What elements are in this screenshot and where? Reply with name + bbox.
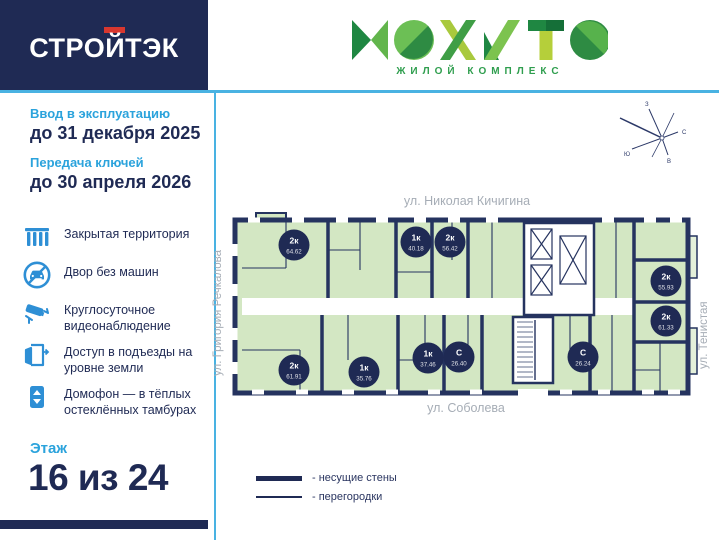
intercom-icon xyxy=(22,382,52,412)
unit-badge: 2к56.42 xyxy=(435,227,466,258)
cctv-icon xyxy=(22,298,52,328)
street-left: ул. Григория Речкалова xyxy=(212,238,224,388)
street-bottom: ул. Соболева xyxy=(396,401,536,415)
compass-north: С xyxy=(682,130,687,136)
compass-east: В xyxy=(667,159,671,165)
compass-south: Ю xyxy=(624,152,630,158)
unit-area: 26.40 xyxy=(451,361,467,368)
feature-closed-territory: Закрытая территория xyxy=(22,222,212,252)
unit-type: 2к xyxy=(662,272,672,282)
complex-logo xyxy=(352,12,608,64)
floor-plan: 2к64.621к40.182к56.422к55.932к61.332к61.… xyxy=(230,210,700,402)
plan-legend: - несущие стены - перегородки xyxy=(256,472,397,510)
unit-badge: С26.24 xyxy=(568,342,599,373)
unit-badge: 1к35.76 xyxy=(349,357,380,388)
keys-date: до 30 апреля 2026 xyxy=(30,172,191,193)
unit-type: 2к xyxy=(290,236,300,246)
elevator-core xyxy=(524,223,594,315)
feature-label: Домофон — в тёплых остеклённых тамбурах xyxy=(64,382,212,418)
floor-value: 16 из 24 xyxy=(28,457,168,499)
unit-badge: 2к61.33 xyxy=(651,306,682,337)
unit-badge: 1к40.18 xyxy=(401,227,432,258)
unit-type: 1к xyxy=(412,233,422,243)
unit-type: 2к xyxy=(290,361,300,371)
unit-badge: 2к55.93 xyxy=(651,266,682,297)
legend-label: - несущие стены xyxy=(312,472,397,484)
unit-area: 37.46 xyxy=(420,362,436,369)
feature-label: Круглосуточное видеонаблюдение xyxy=(64,298,212,334)
unit-badge: 2к64.62 xyxy=(279,230,310,261)
feature-intercom: Домофон — в тёплых остеклённых тамбурах xyxy=(22,382,212,418)
developer-logo-box: СТРОЙТЭК xyxy=(0,0,208,90)
unit-type: 2к xyxy=(446,233,456,243)
unit-area: 61.91 xyxy=(286,374,302,381)
feature-video: Круглосуточное видеонаблюдение xyxy=(22,298,212,334)
feature-label: Двор без машин xyxy=(64,260,159,280)
unit-badge: 1к37.46 xyxy=(413,343,444,374)
unit-area: 55.93 xyxy=(658,285,674,292)
unit-area: 56.42 xyxy=(442,246,458,253)
fence-icon xyxy=(22,222,52,252)
unit-area: 64.62 xyxy=(286,249,302,256)
commissioning-label: Ввод в эксплуатацию xyxy=(30,106,170,121)
corridor xyxy=(594,298,634,315)
unit-type: 1к xyxy=(424,349,434,359)
unit-type: 2к xyxy=(662,312,672,322)
complex-subtitle: ЖИЛОЙ КОМПЛЕКС xyxy=(352,66,608,77)
unit-type: С xyxy=(456,348,462,358)
unit-type: 1к xyxy=(360,363,370,373)
corridor xyxy=(242,298,524,315)
no-car-icon xyxy=(22,260,52,290)
compass-rose: З С В Ю xyxy=(616,96,704,172)
thick-line-swatch xyxy=(256,476,302,481)
unit-area: 40.18 xyxy=(408,246,424,253)
unit-area: 35.76 xyxy=(356,376,372,383)
legend-bearing-walls: - несущие стены xyxy=(256,472,397,484)
thin-line-swatch xyxy=(256,496,302,498)
commissioning-date: до 31 декабря 2025 xyxy=(30,123,200,144)
sidebar-footer-bar xyxy=(0,520,208,529)
unit-area: 26.24 xyxy=(575,361,591,368)
unit-area: 61.33 xyxy=(658,325,674,332)
unit-badge: С26.40 xyxy=(444,342,475,373)
keys-label: Передача ключей xyxy=(30,155,144,170)
legend-label: - перегородки xyxy=(312,491,382,503)
door-icon xyxy=(22,340,52,370)
unit-type: С xyxy=(580,348,586,358)
feature-label: Закрытая территория xyxy=(64,222,189,242)
developer-logo: СТРОЙТЭК xyxy=(0,33,208,64)
header-divider xyxy=(0,90,719,93)
floor-label: Этаж xyxy=(30,440,67,457)
street-top: ул. Николая Кичигина xyxy=(382,194,552,208)
feature-label: Доступ в подъезды на уровне земли xyxy=(64,340,212,376)
unit-badge: 2к61.91 xyxy=(279,355,310,386)
feature-no-cars: Двор без машин xyxy=(22,260,212,290)
legend-partitions: - перегородки xyxy=(256,491,397,503)
compass-west: З xyxy=(645,102,649,108)
feature-ground-access: Доступ в подъезды на уровне земли xyxy=(22,340,212,376)
